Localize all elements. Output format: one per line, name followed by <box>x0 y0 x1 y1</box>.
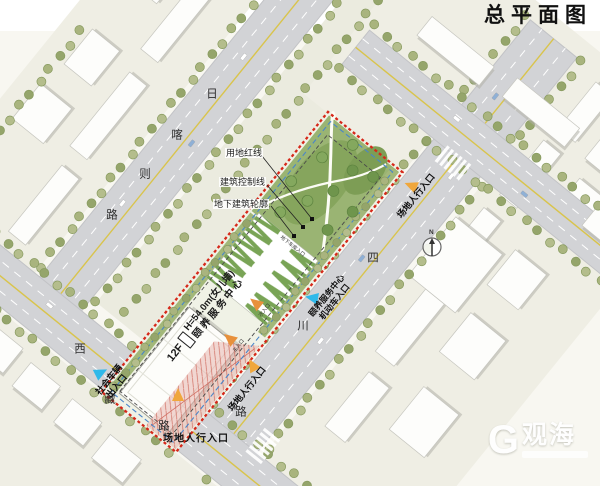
street-char-xizang-3: 路 <box>158 420 170 433</box>
north-arrow-icon <box>423 238 441 256</box>
street-char-rikaze-4: 路 <box>106 209 118 222</box>
street-char-sichuan-1: 四 <box>367 252 379 265</box>
street-char-sichuan-2: 川 <box>297 320 309 333</box>
street-char-rikaze-2: 喀 <box>171 129 183 142</box>
north-arrow-label: N <box>429 229 434 236</box>
street-char-xizang-1: 西 <box>74 343 86 356</box>
legend-label-underground: 地下建筑轮廓 <box>213 199 269 209</box>
legend-label-control-line: 建筑控制线 <box>219 177 266 187</box>
watermark-tagline-bar <box>522 451 588 458</box>
legend-label-red-line: 用地红线 <box>225 148 263 158</box>
street-char-rikaze-1: 日 <box>206 88 218 101</box>
page-title: 总平面图 <box>484 4 592 28</box>
watermark-name: 观海 <box>522 423 576 448</box>
entrance-label-south-pedestrian: 场地人行入口 <box>163 433 229 445</box>
site-plan-map: 主入口 次入口 地下车库入口 <box>0 0 600 486</box>
watermark-logo: G 观海 <box>488 420 588 460</box>
watermark-letter: G <box>488 420 519 460</box>
street-char-rikaze-3: 则 <box>139 168 151 181</box>
